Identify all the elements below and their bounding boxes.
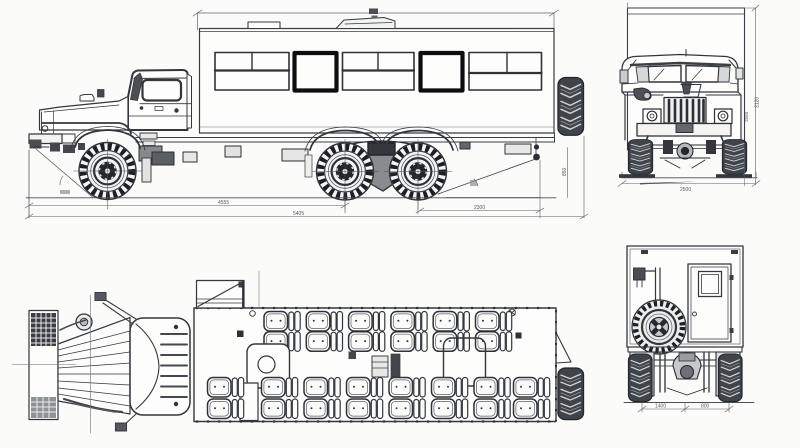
svg-text:850: 850 [562, 167, 568, 176]
svg-text:5405: 5405 [293, 211, 304, 217]
svg-text:3120: 3120 [755, 97, 761, 108]
svg-text:800: 800 [701, 404, 710, 410]
svg-text:2550: 2550 [744, 111, 749, 122]
svg-text:2500: 2500 [680, 187, 691, 193]
svg-text:2300: 2300 [474, 205, 485, 211]
svg-text:1400: 1400 [655, 404, 666, 410]
svg-text:4555: 4555 [218, 200, 229, 206]
